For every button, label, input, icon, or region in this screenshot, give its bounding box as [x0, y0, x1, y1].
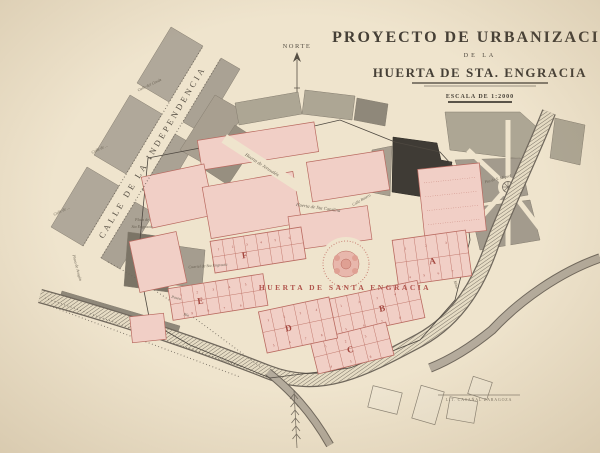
new-block-a: 1 2 3 4 5 6 7 A — [392, 230, 472, 286]
credit-block: LIT. CASAÑAL ZARAGOZA — [438, 395, 520, 402]
map-title2: HUERTA DE STA. ENGRACIA — [373, 65, 587, 80]
map-sheet: Pza de S. Miguel — [0, 0, 600, 453]
new-block-lots-right — [418, 163, 487, 237]
lithographer-credit: LIT. CASAÑAL ZARAGOZA — [446, 397, 512, 402]
plaza-engracia-label: Plaza de — [134, 217, 149, 222]
map-subtitle: DE LA — [464, 53, 497, 59]
map-canvas: Pza de S. Miguel — [0, 0, 600, 453]
map-scale: ESCALA DE 1:2000 — [446, 94, 514, 100]
north-label: NORTE — [283, 43, 312, 50]
map-title: PROYECTO DE URBANIZACIÓN — [332, 27, 600, 46]
huerta-main-label: HUERTA DE SANTA ENGRACIA — [259, 283, 431, 292]
plaza-engracia-label: Sta Engracia — [132, 224, 153, 229]
